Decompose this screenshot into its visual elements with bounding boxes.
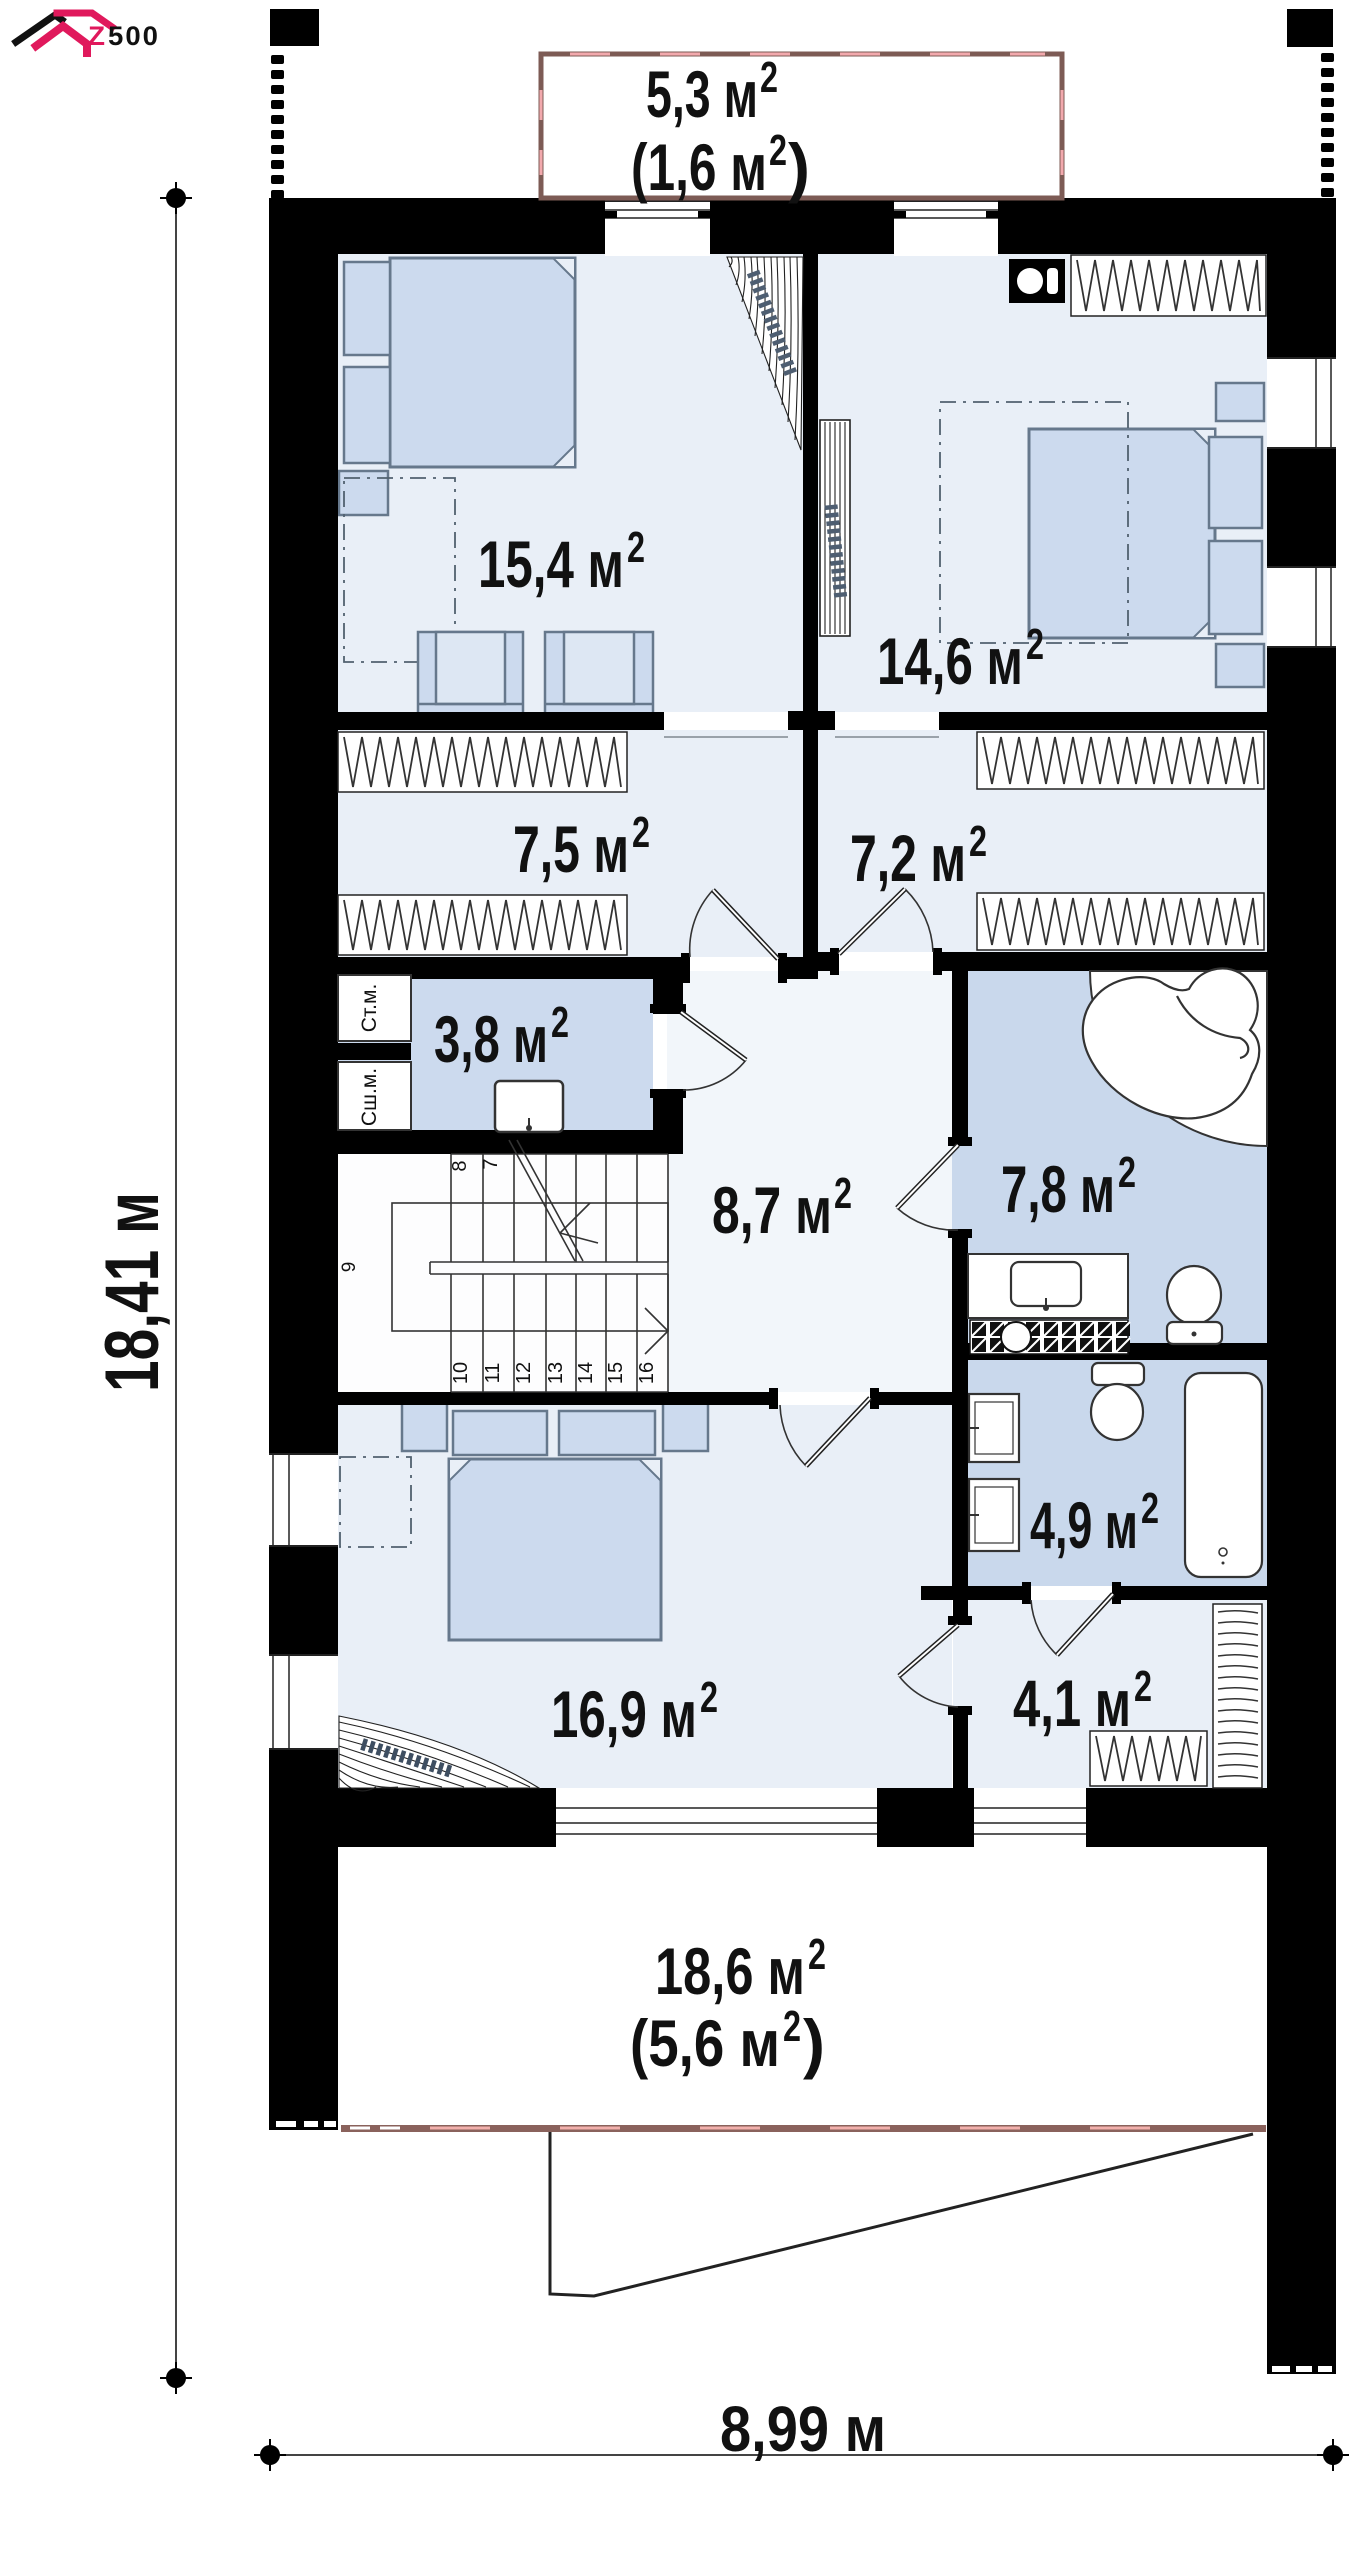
svg-text:2: 2 — [834, 1169, 852, 1218]
svg-text:7,2 м: 7,2 м — [850, 821, 966, 895]
svg-text:2: 2 — [808, 1930, 826, 1979]
svg-text:Сш.м.: Сш.м. — [358, 1068, 381, 1126]
svg-text:2: 2 — [760, 53, 778, 102]
svg-text:2: 2 — [1141, 1484, 1159, 1533]
svg-text:18,41 м: 18,41 м — [90, 1192, 175, 1392]
svg-text:13: 13 — [545, 1362, 567, 1384]
svg-text:Z: Z — [88, 21, 105, 51]
svg-text:8: 8 — [449, 1160, 471, 1171]
svg-text:8,7 м: 8,7 м — [712, 1173, 832, 1247]
svg-text:2: 2 — [783, 2002, 801, 2051]
svg-text:9: 9 — [339, 1262, 360, 1273]
svg-text:2: 2 — [551, 998, 569, 1047]
svg-text:11: 11 — [482, 1363, 504, 1384]
svg-text:5,3 м: 5,3 м — [646, 57, 758, 131]
svg-text:2: 2 — [632, 808, 650, 857]
svg-text:12: 12 — [513, 1362, 535, 1384]
svg-text:2: 2 — [1134, 1662, 1152, 1711]
svg-text:2: 2 — [1026, 620, 1044, 669]
svg-text:2: 2 — [1118, 1148, 1136, 1197]
svg-text:2: 2 — [700, 1673, 718, 1722]
svg-text:2: 2 — [769, 126, 787, 175]
svg-text:7,5 м: 7,5 м — [513, 812, 629, 886]
svg-text:2: 2 — [969, 817, 987, 866]
svg-text:7: 7 — [480, 1158, 502, 1169]
svg-text:): ) — [788, 130, 810, 204]
svg-text:15,4 м: 15,4 м — [478, 527, 624, 601]
svg-text:4,9 м: 4,9 м — [1030, 1488, 1138, 1562]
svg-text:4,1 м: 4,1 м — [1013, 1666, 1131, 1740]
svg-text:500: 500 — [108, 21, 160, 51]
svg-text:16,9 м: 16,9 м — [551, 1677, 697, 1751]
svg-text:15: 15 — [605, 1362, 627, 1384]
svg-text:16: 16 — [636, 1362, 658, 1384]
svg-text:2: 2 — [627, 523, 645, 572]
svg-text:14,6 м: 14,6 м — [877, 624, 1023, 698]
svg-text:(5,6 м: (5,6 м — [630, 2006, 780, 2080]
svg-text:(1,6 м: (1,6 м — [631, 130, 767, 204]
svg-text:Ст.м.: Ст.м. — [358, 984, 381, 1033]
svg-text:7,8 м: 7,8 м — [1001, 1152, 1115, 1226]
svg-text:): ) — [803, 2006, 825, 2080]
svg-text:18,6 м: 18,6 м — [655, 1934, 805, 2008]
svg-text:8,99 м: 8,99 м — [720, 2393, 886, 2465]
svg-text:3,8 м: 3,8 м — [434, 1002, 548, 1076]
svg-text:10: 10 — [450, 1362, 472, 1384]
svg-text:14: 14 — [575, 1362, 597, 1384]
